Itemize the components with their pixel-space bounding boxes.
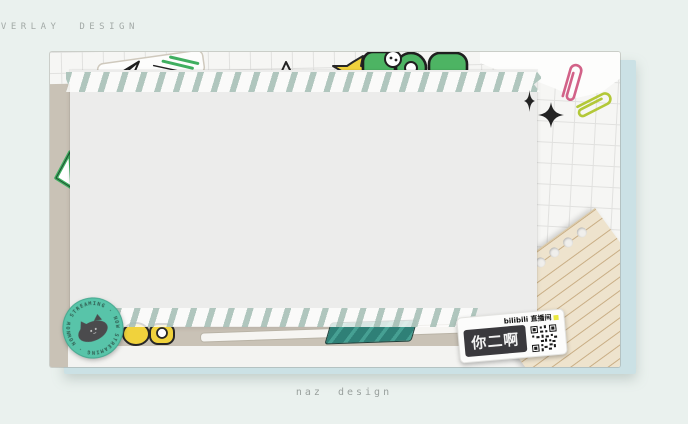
qr-code-icon: [530, 324, 558, 352]
washi-tape-top: [66, 72, 542, 92]
overlay-title: OVERLAY DESIGN: [0, 22, 139, 32]
channel-name: 你二啊: [471, 328, 521, 353]
sparkle-icon-small: [524, 90, 535, 112]
bilibili-live-sticker: bilibili 直播间 你二啊: [456, 308, 568, 363]
washi-tape-bottom: [78, 308, 478, 327]
designer-credit: naz design: [0, 387, 688, 398]
bilibili-tv-badge: [553, 314, 558, 319]
punch-hole: [547, 245, 561, 259]
punch-hole: [561, 235, 575, 249]
punch-hole: [575, 225, 589, 239]
channel-name-box: 你二啊: [463, 325, 527, 357]
capture-area: [70, 70, 537, 326]
stream-overlay-canvas: OVERLAY DESIGN: [0, 0, 688, 424]
